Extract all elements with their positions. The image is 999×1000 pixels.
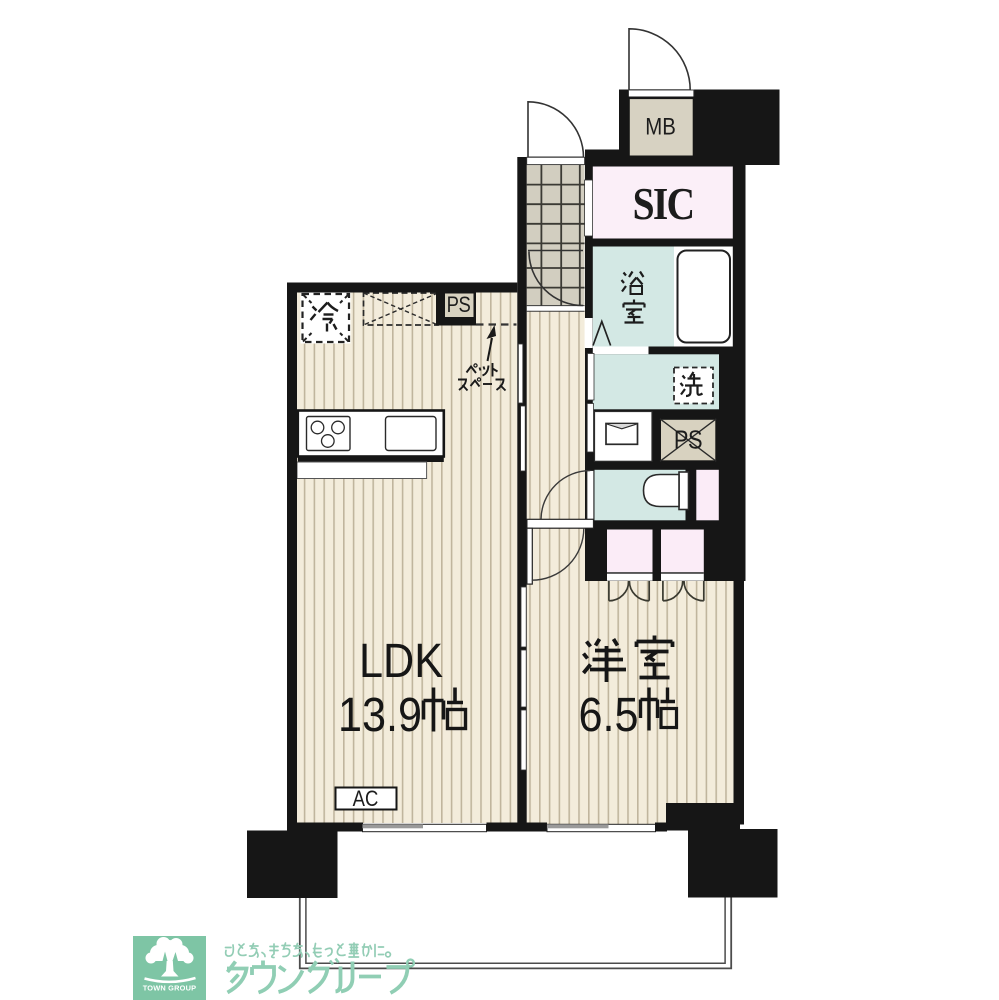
svg-text:PS: PS xyxy=(447,294,471,318)
svg-text:6.5: 6.5 xyxy=(578,688,638,742)
svg-text:TOWN GROUP: TOWN GROUP xyxy=(143,984,197,993)
svg-text:AC: AC xyxy=(353,788,379,812)
svg-text:13.9: 13.9 xyxy=(338,688,422,742)
svg-text:PS: PS xyxy=(674,426,702,455)
svg-text:SIC: SIC xyxy=(633,179,694,229)
svg-text:MB: MB xyxy=(645,113,676,140)
svg-text:LDK: LDK xyxy=(359,634,443,688)
